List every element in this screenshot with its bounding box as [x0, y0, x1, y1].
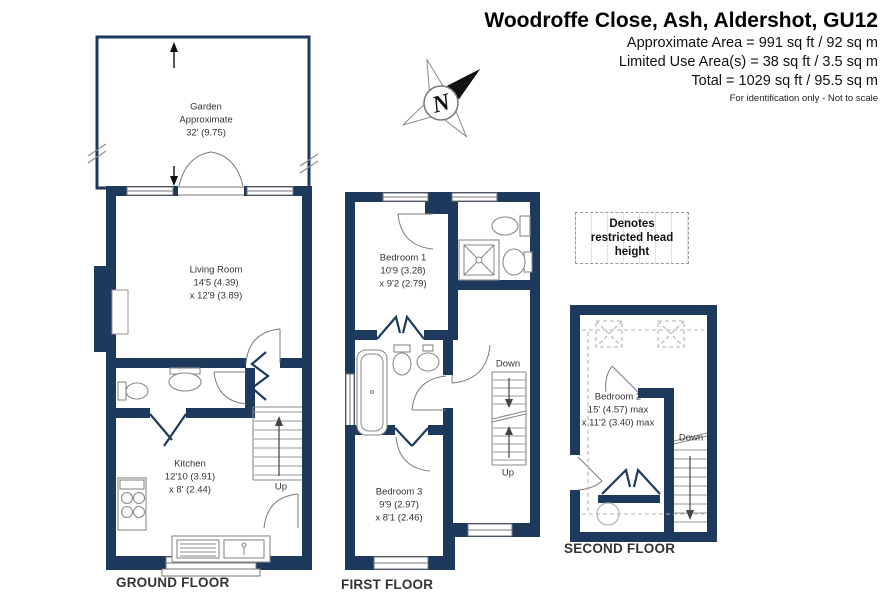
sink — [503, 249, 532, 275]
toilet — [393, 345, 411, 375]
page-title: Woodroffe Close, Ash, Aldershot, GU12 — [484, 8, 878, 34]
rooflight — [596, 321, 622, 347]
fireplace-recess — [112, 290, 128, 334]
room-label-bedroom2: Bedroom 2 15' (4.57) max x 11'2 (3.40) m… — [582, 391, 654, 430]
window — [468, 524, 512, 536]
window — [383, 193, 428, 201]
window — [374, 557, 428, 569]
window — [127, 187, 173, 195]
hob — [118, 478, 146, 530]
total-area: Total = 1029 sq ft / 95.5 sq m — [484, 72, 878, 91]
wardrobe-doors — [377, 317, 424, 339]
wardrobe-doors — [602, 470, 660, 494]
header: Woodroffe Close, Ash, Aldershot, GU12 Ap… — [484, 8, 878, 106]
first-floor-stairs — [492, 372, 526, 465]
first-floor-plan — [345, 192, 540, 570]
shower — [459, 240, 499, 280]
limited-use-area: Limited Use Area(s) = 38 sq ft / 3.5 sq … — [484, 53, 878, 72]
bathtub — [357, 350, 387, 435]
ground-floor-label: GROUND FLOOR — [116, 575, 229, 590]
disclaimer: For identification only - Not to scale — [484, 91, 878, 106]
approximate-area: Approximate Area = 991 sq ft / 92 sq m — [484, 34, 878, 53]
legend-text: Denotes restricted head height — [582, 217, 682, 259]
sink — [169, 368, 201, 391]
stairs-down-label-second: Down — [679, 433, 703, 444]
room-label-living-room: Living Room 14'5 (4.39) x 12'9 (3.89) — [190, 264, 243, 303]
ground-stairs — [252, 352, 302, 480]
room-label-bedroom3: Bedroom 3 9'9 (2.97) x 8'1 (2.46) — [375, 486, 422, 525]
rooflight — [658, 321, 684, 347]
second-floor-stairs — [674, 433, 707, 522]
toilet — [118, 382, 148, 400]
first-floor-label: FIRST FLOOR — [341, 577, 433, 592]
kitchen-sink-unit — [172, 536, 270, 562]
toilet — [492, 216, 530, 236]
compass-north-icon: N — [399, 57, 486, 141]
room-label-garden: Garden Approximate 32' (9.75) — [179, 101, 232, 140]
stairs-up-label-ground: Up — [275, 482, 287, 493]
kitchen-door — [150, 414, 186, 446]
rooflight-circle — [597, 503, 619, 525]
restricted-head-height-legend: Denotes restricted head height — [575, 212, 689, 264]
floorplan-page: N Woodroffe Close, Ash, Aldershot, GU12 … — [0, 0, 892, 595]
bedroom3-door — [395, 428, 428, 446]
window — [247, 187, 293, 195]
window — [346, 374, 354, 432]
sink — [417, 345, 439, 371]
window — [452, 193, 497, 201]
second-floor-label: SECOND FLOOR — [564, 541, 675, 556]
room-label-kitchen: Kitchen 12'10 (3.91) x 8' (2.44) — [165, 458, 215, 497]
room-label-bedroom1: Bedroom 1 10'9 (3.28) x 9'2 (2.79) — [379, 252, 426, 291]
stairs-up-label-first: Up — [502, 468, 514, 479]
stairs-down-label-first: Down — [496, 359, 520, 370]
